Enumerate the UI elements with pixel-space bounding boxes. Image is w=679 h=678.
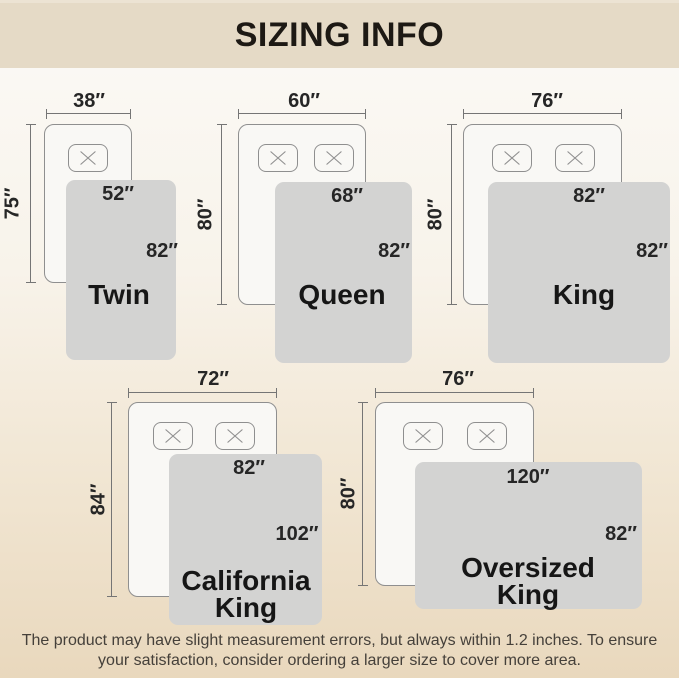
pillow-x-icon xyxy=(69,145,107,171)
pillow xyxy=(153,422,193,450)
size-name-label: California King xyxy=(171,567,321,621)
blanket xyxy=(488,182,670,363)
bed-width-dimension-line xyxy=(238,109,366,119)
pillow xyxy=(467,422,507,450)
pillow xyxy=(555,144,595,172)
footer-disclaimer: The product may have slight measurement … xyxy=(12,631,667,671)
pillow-x-icon xyxy=(468,423,506,449)
pillow xyxy=(258,144,298,172)
blanket-length-label: 82″ xyxy=(612,240,679,263)
blanket-length-label: 82″ xyxy=(354,240,434,263)
pillow-x-icon xyxy=(154,423,192,449)
bed-length-dimension-line xyxy=(217,124,227,305)
blanket xyxy=(66,180,176,360)
pillow-x-icon xyxy=(556,145,594,171)
bed-width-dimension-line xyxy=(375,388,534,398)
blanket-length-label: 102″ xyxy=(247,523,347,546)
bed-length-label: 80″ xyxy=(425,185,448,245)
header: SIZING INFO xyxy=(0,0,679,68)
pillow xyxy=(68,144,108,172)
bed-width-dimension-line xyxy=(463,109,622,119)
bed-length-dimension-line xyxy=(447,124,457,305)
blanket-length-label: 82″ xyxy=(122,240,202,263)
pillow-x-icon xyxy=(493,145,531,171)
size-name-label: Oversized King xyxy=(438,554,618,608)
blanket-width-label: 52″ xyxy=(78,183,158,206)
blanket-width-label: 82″ xyxy=(209,457,289,480)
size-name-label: King xyxy=(519,281,649,308)
page-title: SIZING INFO xyxy=(235,16,445,55)
blanket-length-label: 82″ xyxy=(581,523,661,546)
pillow xyxy=(492,144,532,172)
bed-length-label: 75″ xyxy=(2,174,25,234)
bed-length-label: 84″ xyxy=(88,470,111,530)
pillow xyxy=(215,422,255,450)
bed-length-label: 80″ xyxy=(338,464,361,524)
pillow xyxy=(314,144,354,172)
pillow-x-icon xyxy=(216,423,254,449)
pillow-x-icon xyxy=(315,145,353,171)
sizing-info-infographic: SIZING INFO 38″ 75″ 52″ 82″ Twin 60″ 80″… xyxy=(0,0,679,678)
bed-length-label: 80″ xyxy=(195,185,218,245)
blanket-width-label: 68″ xyxy=(307,185,387,208)
pillow-x-icon xyxy=(404,423,442,449)
blanket-width-label: 82″ xyxy=(549,185,629,208)
bed-width-dimension-line xyxy=(46,109,131,119)
pillow xyxy=(403,422,443,450)
size-name-label: Twin xyxy=(64,281,174,308)
pillow-x-icon xyxy=(259,145,297,171)
size-name-label: Queen xyxy=(277,281,407,308)
blanket-width-label: 120″ xyxy=(478,466,578,489)
bed-length-dimension-line xyxy=(26,124,36,283)
bed-width-dimension-line xyxy=(128,388,277,398)
blanket xyxy=(275,182,412,363)
